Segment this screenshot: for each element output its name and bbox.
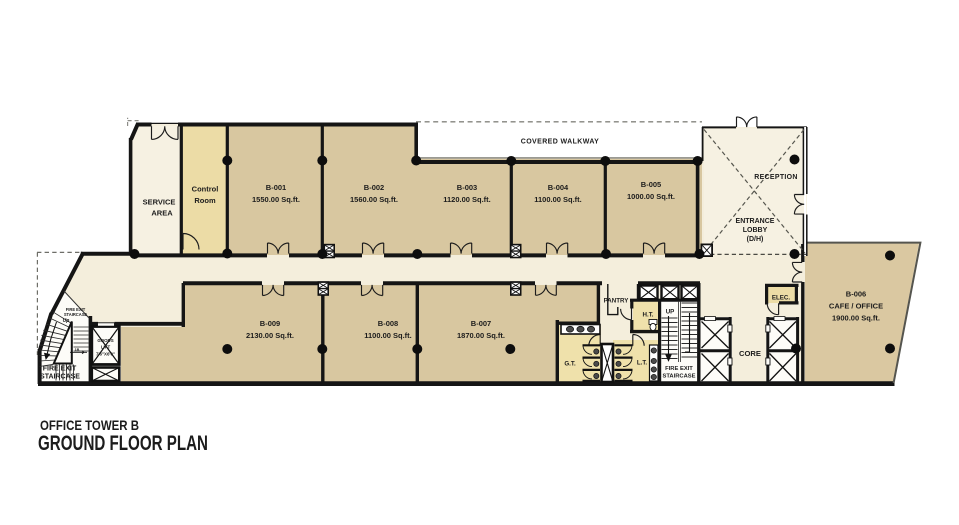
svg-text:COVERED WALKWAY: COVERED WALKWAY [521, 139, 599, 146]
svg-text:STAIRCASE: STAIRCASE [64, 312, 88, 317]
svg-text:(D/H): (D/H) [747, 236, 764, 243]
svg-text:FIRE EXIT: FIRE EXIT [43, 366, 77, 373]
svg-text:ELEC.: ELEC. [772, 295, 791, 302]
svg-text:B-004: B-004 [548, 183, 569, 192]
svg-text:CORE: CORE [739, 349, 761, 358]
svg-text:1100.00 Sq.ft.: 1100.00 Sq.ft. [364, 331, 412, 340]
svg-text:Room: Room [194, 196, 216, 205]
svg-text:B-006: B-006 [846, 290, 866, 299]
svg-text:1120.00 Sq.ft.: 1120.00 Sq.ft. [443, 195, 491, 204]
svg-text:Control: Control [192, 185, 219, 194]
svg-text:GOODS: GOODS [97, 338, 113, 343]
svg-text:2130.00 Sq.ft.: 2130.00 Sq.ft. [246, 331, 294, 340]
svg-text:AREA: AREA [151, 209, 173, 218]
svg-text:7'6"X6'0": 7'6"X6'0" [96, 352, 115, 357]
svg-text:B-008: B-008 [378, 319, 398, 328]
svg-text:FIRE EXIT: FIRE EXIT [665, 366, 693, 372]
svg-text:1100.00 Sq.ft.: 1100.00 Sq.ft. [534, 195, 582, 204]
svg-text:G.T.: G.T. [564, 361, 576, 368]
svg-text:ENTRANCE: ENTRANCE [736, 218, 775, 225]
svg-text:OFFICE TOWER B: OFFICE TOWER B [40, 417, 139, 433]
svg-text:B-003: B-003 [457, 183, 477, 192]
svg-text:RECEPTION: RECEPTION [754, 174, 798, 181]
svg-text:1B: 1B [75, 348, 80, 352]
svg-text:1000.00 Sq.ft.: 1000.00 Sq.ft. [627, 192, 675, 201]
svg-text:Up: Up [63, 318, 70, 324]
svg-text:STAIRCASE: STAIRCASE [662, 374, 695, 380]
svg-text:UP: UP [666, 309, 675, 316]
svg-text:1560.00 Sq.ft.: 1560.00 Sq.ft. [350, 195, 398, 204]
svg-text:SERVICE: SERVICE [143, 198, 176, 207]
svg-text:H.T.: H.T. [643, 312, 654, 319]
svg-text:B-002: B-002 [364, 183, 384, 192]
svg-text:PANTRY: PANTRY [604, 298, 630, 305]
svg-text:STAIRCASE: STAIRCASE [40, 374, 80, 381]
svg-text:1550.00 Sq.ft.: 1550.00 Sq.ft. [252, 195, 300, 204]
svg-text:B-007: B-007 [471, 319, 491, 328]
svg-text:B-001: B-001 [266, 183, 286, 192]
svg-text:LOBBY: LOBBY [743, 227, 768, 234]
svg-text:1870.00 Sq.ft.: 1870.00 Sq.ft. [457, 331, 505, 340]
svg-text:1900.00 Sq.ft.: 1900.00 Sq.ft. [832, 314, 880, 323]
svg-text:CAFE / OFFICE: CAFE / OFFICE [829, 302, 883, 311]
svg-text:L.T.: L.T. [637, 360, 648, 367]
svg-text:GROUND FLOOR PLAN: GROUND FLOOR PLAN [38, 432, 208, 455]
svg-text:B-009: B-009 [260, 319, 280, 328]
svg-text:LIFT: LIFT [101, 345, 111, 350]
svg-text:B-005: B-005 [641, 180, 661, 189]
